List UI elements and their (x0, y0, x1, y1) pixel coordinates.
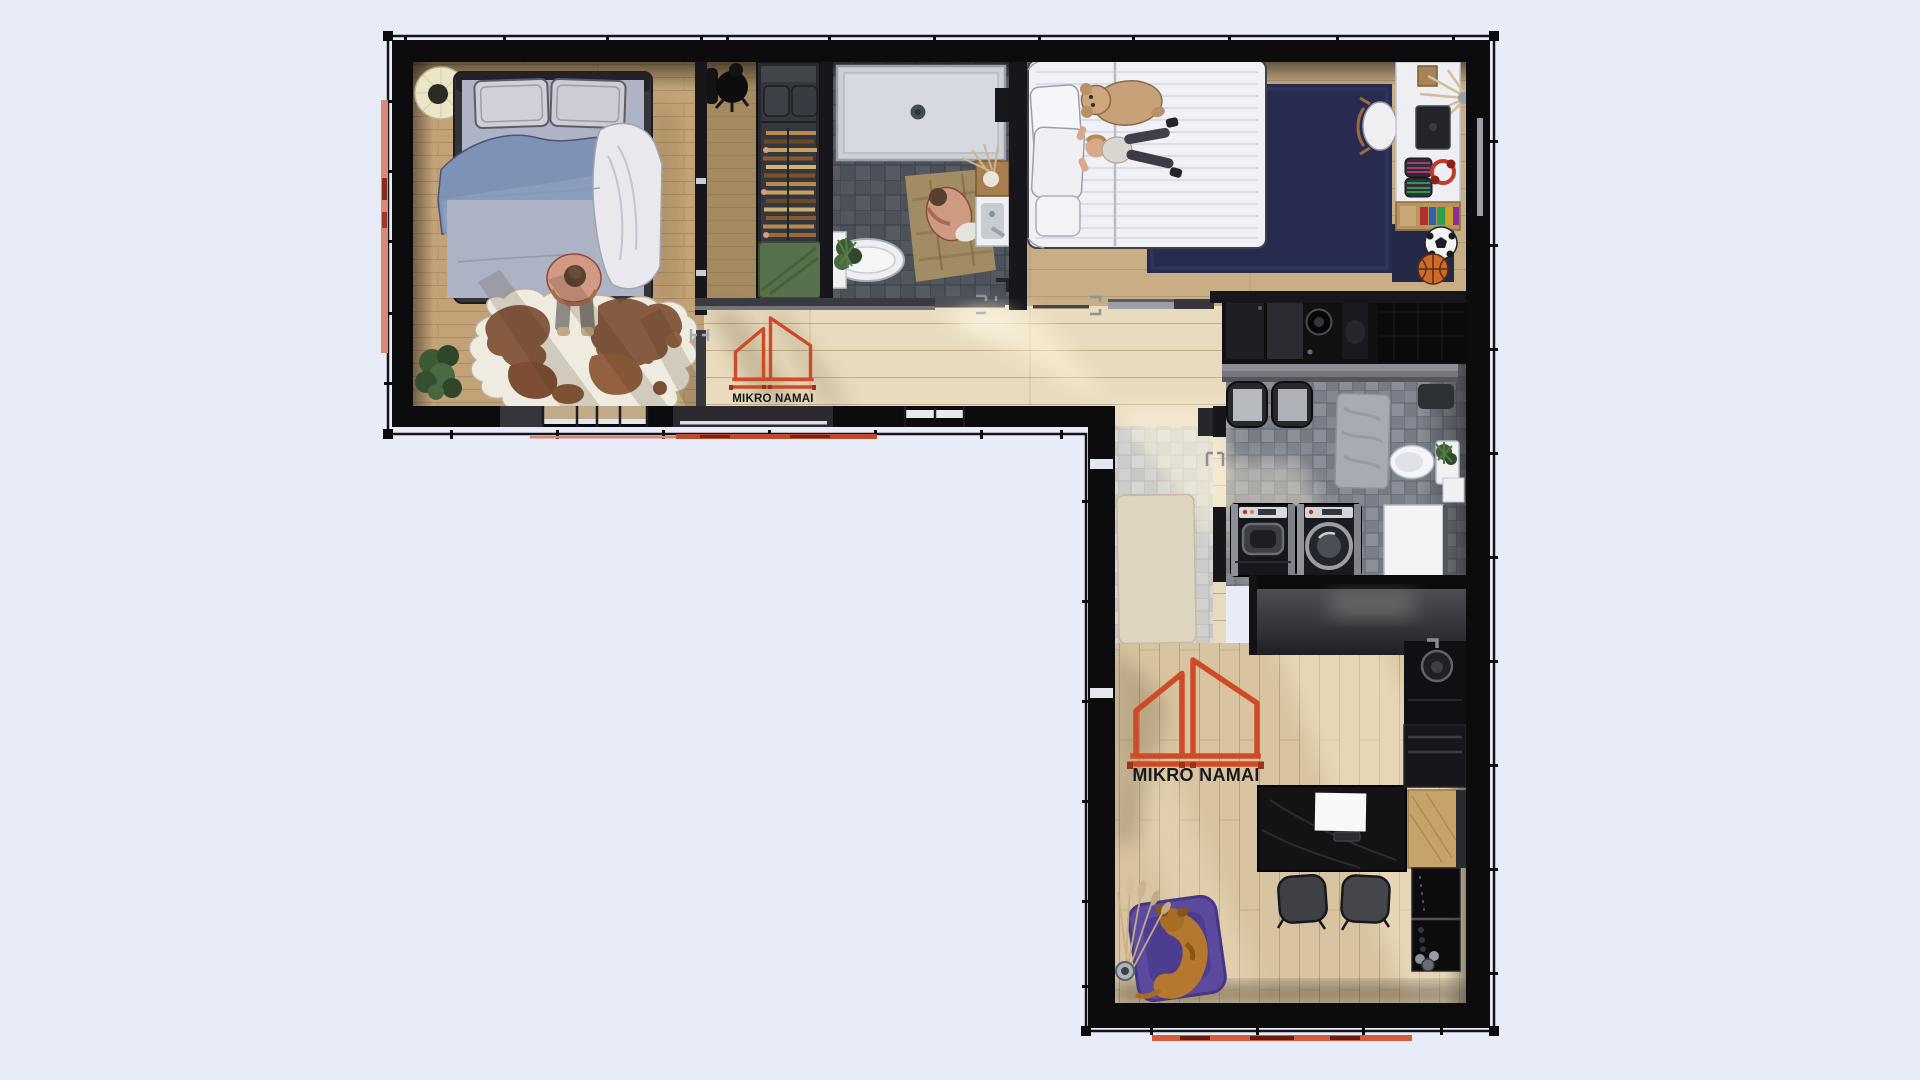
svg-text:MIKRO NAMAI: MIKRO NAMAI (732, 393, 813, 405)
svg-text:MIKRO NAMAI: MIKRO NAMAI (1132, 765, 1259, 785)
